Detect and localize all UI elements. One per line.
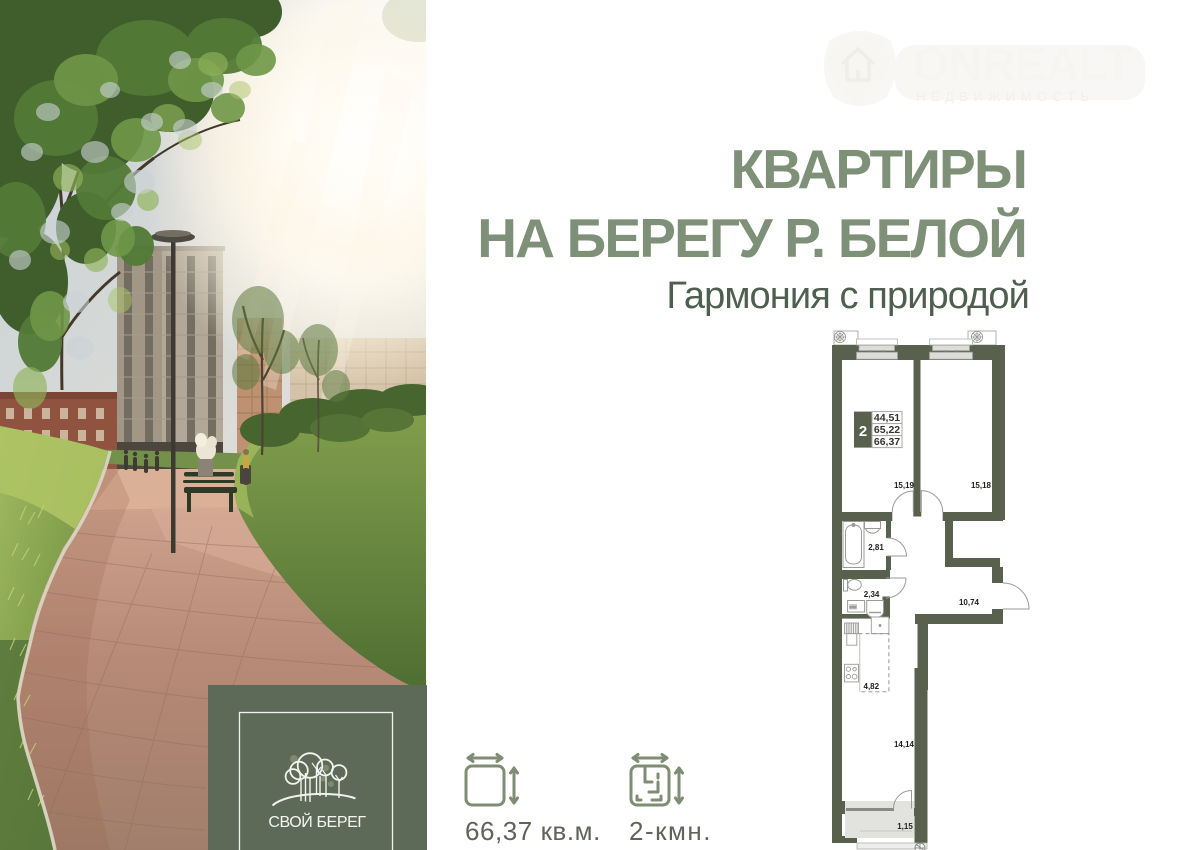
svg-text:2,81: 2,81 [868,543,884,552]
svg-text:1,15: 1,15 [897,822,913,831]
svg-text:66,37: 66,37 [874,436,900,448]
svg-text:10,74: 10,74 [959,598,980,607]
svg-text:ONREALT: ONREALT [913,38,1132,90]
svg-text:65,22: 65,22 [874,424,900,436]
svg-text:14,14: 14,14 [894,740,915,749]
svg-text:44,51: 44,51 [874,412,900,424]
svg-text:НЕДВИЖИМОСТЬ: НЕДВИЖИМОСТЬ [916,89,1095,104]
svg-text:МАШ: МАШ [850,605,857,609]
svg-text:2: 2 [859,423,867,440]
svg-text:4,82: 4,82 [864,682,880,691]
svg-text:СВОЙ БЕРЕГ: СВОЙ БЕРЕГ [268,812,366,831]
svg-text:15,18: 15,18 [971,481,992,490]
svg-text:15,19: 15,19 [894,481,915,490]
svg-text:2,34: 2,34 [864,590,880,599]
